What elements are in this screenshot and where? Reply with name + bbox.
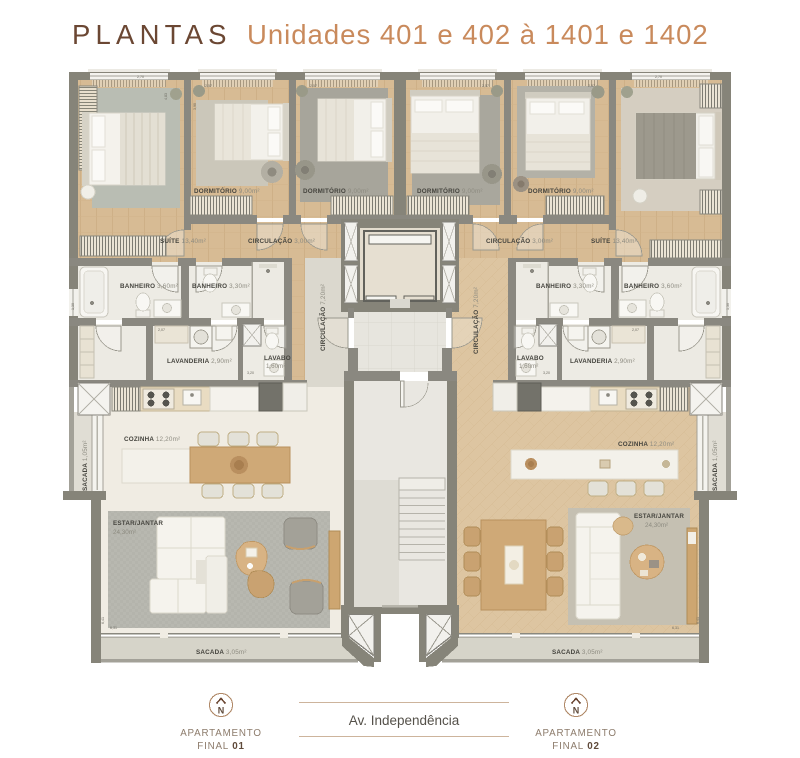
svg-text:CIRCULAÇÃO 3,00m²: CIRCULAÇÃO 3,00m² [486, 236, 553, 245]
svg-text:ESTAR/JANTAR: ESTAR/JANTAR [113, 520, 163, 527]
svg-text:APARTAMENTO: APARTAMENTO [535, 728, 617, 739]
svg-text:LAVABO: LAVABO [517, 355, 544, 362]
svg-text:2,07: 2,07 [632, 328, 639, 332]
svg-text:DORMITÓRIO 9,00m²: DORMITÓRIO 9,00m² [303, 186, 369, 195]
svg-text:6,31: 6,31 [672, 626, 679, 630]
svg-text:Av. Independência: Av. Independência [349, 713, 460, 728]
svg-text:ESTAR/JANTAR: ESTAR/JANTAR [634, 513, 684, 520]
svg-text:BANHEIRO 3,30m²: BANHEIRO 3,30m² [536, 283, 594, 290]
svg-text:2,57: 2,57 [205, 84, 212, 88]
svg-text:CIRCULAÇÃO 7,20m²: CIRCULAÇÃO 7,20m² [471, 287, 480, 354]
svg-text:BANHEIRO 3,60m²: BANHEIRO 3,60m² [624, 283, 682, 290]
svg-text:COZINHA 12,20m²: COZINHA 12,20m² [618, 441, 674, 448]
svg-text:3,20: 3,20 [543, 371, 550, 375]
svg-text:N: N [573, 706, 580, 716]
svg-text:2,70: 2,70 [137, 75, 144, 79]
svg-text:PLANTAS: PLANTAS [72, 19, 232, 50]
svg-text:FINAL 01: FINAL 01 [197, 741, 244, 752]
svg-text:DORMITÓRIO 9,00m²: DORMITÓRIO 9,00m² [194, 186, 260, 195]
svg-text:SACADA 1,05m²: SACADA 1,05m² [712, 440, 719, 491]
svg-text:1,60m²: 1,60m² [519, 363, 538, 370]
svg-text:6,31: 6,31 [110, 626, 117, 630]
svg-text:3,90: 3,90 [193, 103, 197, 110]
svg-text:2,57: 2,57 [588, 84, 595, 88]
svg-text:CIRCULAÇÃO 7,20m²: CIRCULAÇÃO 7,20m² [318, 284, 327, 351]
svg-text:SACADA 3,05m²: SACADA 3,05m² [552, 649, 603, 656]
svg-text:LAVANDERIA 2,90m²: LAVANDERIA 2,90m² [570, 358, 635, 365]
svg-text:2,57: 2,57 [310, 84, 317, 88]
svg-text:DORMITÓRIO 9,00m²: DORMITÓRIO 9,00m² [417, 186, 483, 195]
svg-text:2,57: 2,57 [482, 84, 489, 88]
svg-text:Unidades 401 e 402 à 1401 e 14: Unidades 401 e 402 à 1401 e 1402 [247, 19, 709, 50]
svg-text:COZINHA 12,20m²: COZINHA 12,20m² [124, 436, 180, 443]
svg-text:SACADA 3,05m²: SACADA 3,05m² [196, 649, 247, 656]
svg-text:4,83: 4,83 [164, 93, 168, 100]
svg-text:FINAL 02: FINAL 02 [552, 741, 599, 752]
svg-text:DORMITÓRIO 9,00m²: DORMITÓRIO 9,00m² [528, 186, 594, 195]
svg-text:APARTAMENTO: APARTAMENTO [180, 728, 262, 739]
svg-text:1,60m²: 1,60m² [266, 363, 285, 370]
svg-text:N: N [218, 706, 225, 716]
svg-text:1,30: 1,30 [71, 303, 75, 310]
svg-text:LAVANDERIA 2,90m²: LAVANDERIA 2,90m² [167, 358, 232, 365]
svg-text:2,07: 2,07 [158, 328, 165, 332]
svg-text:6,41: 6,41 [696, 617, 700, 624]
svg-text:3,20: 3,20 [247, 371, 254, 375]
svg-text:CIRCULAÇÃO 3,00m²: CIRCULAÇÃO 3,00m² [248, 236, 315, 245]
svg-text:24,30m²: 24,30m² [113, 529, 136, 536]
svg-text:BANHEIRO 3,60m²: BANHEIRO 3,60m² [120, 283, 178, 290]
svg-text:6,41: 6,41 [101, 617, 105, 624]
svg-text:SUÍTE 13,40m²: SUÍTE 13,40m² [591, 236, 637, 245]
svg-text:SACADA 1,05m²: SACADA 1,05m² [82, 440, 89, 491]
svg-text:2,70: 2,70 [655, 75, 662, 79]
svg-text:LAVABO: LAVABO [264, 355, 291, 362]
svg-text:SUÍTE 13,40m²: SUÍTE 13,40m² [160, 236, 206, 245]
svg-text:BANHEIRO 3,30m²: BANHEIRO 3,30m² [192, 283, 250, 290]
svg-text:1,30: 1,30 [726, 303, 730, 310]
svg-text:24,30m²: 24,30m² [645, 522, 668, 529]
